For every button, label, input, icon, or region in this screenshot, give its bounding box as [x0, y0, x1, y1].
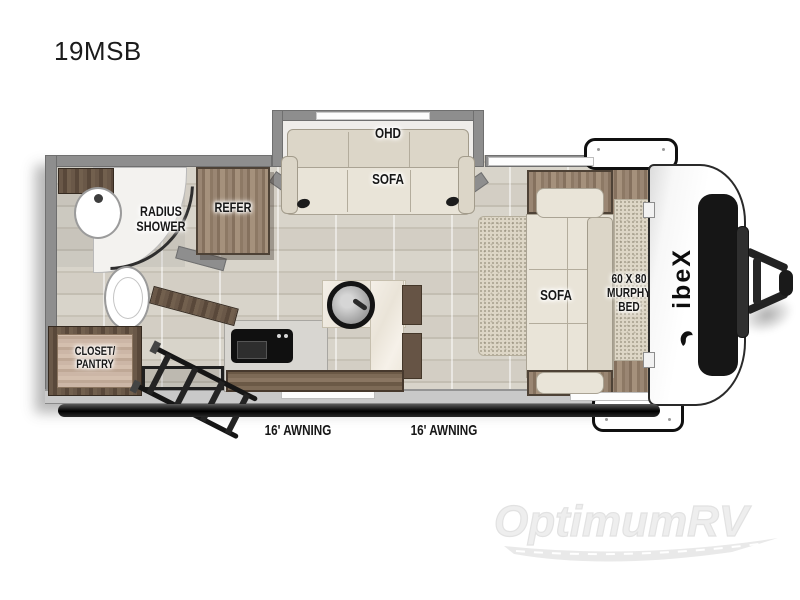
watermark-text: OptimumRV	[494, 497, 752, 546]
slideout-light-strip	[316, 112, 430, 120]
ibex-logo: ibeX	[664, 220, 700, 336]
kitchen-cabinet-front	[226, 370, 404, 392]
wall-top-left	[45, 155, 272, 167]
side-table-lower	[402, 333, 422, 379]
slide-sofa-armrest-right	[458, 156, 475, 214]
optimumrv-watermark: OptimumRV	[486, 488, 798, 580]
ohd-label: OHD	[358, 126, 417, 142]
radius-shower-line1: RADIUS	[127, 204, 194, 219]
ibex-logo-text: ibeX	[668, 248, 697, 309]
closet-line1: CLOSET/	[65, 345, 124, 358]
floorplan-canvas: 19MSB OptimumRV OHD SOFA RADIUS	[0, 0, 800, 600]
murphy-line3: BED	[606, 300, 651, 314]
slide-sofa-armrest-left	[281, 156, 298, 214]
closet-pantry-label: CLOSET/ PANTRY	[65, 345, 124, 370]
cooktop-knob	[284, 334, 288, 338]
toilet-seat	[113, 277, 143, 319]
sofa-armrest-top	[536, 188, 604, 218]
marker-light-top	[643, 202, 655, 218]
model-number-label: 19MSB	[54, 36, 142, 67]
kitchen-sink	[327, 281, 375, 329]
guard-screw-dot	[668, 418, 671, 421]
cushion-seam	[347, 170, 348, 212]
slideout-wall-right	[473, 110, 484, 167]
hitch-mount-bar	[736, 226, 749, 338]
cooktop	[231, 329, 293, 363]
island-counter-column	[370, 280, 404, 384]
hitch-jack-post	[753, 258, 761, 304]
radius-shower-label: RADIUS SHOWER	[127, 204, 194, 234]
murphy-line2: MURPHY	[606, 286, 651, 300]
murphy-line1: 60 X 80	[606, 272, 651, 286]
side-table-upper	[402, 285, 422, 325]
marker-light-bottom	[643, 352, 655, 368]
slide-sofa-label: SOFA	[358, 172, 417, 188]
hitch-arm-upper	[745, 247, 788, 272]
main-sofa-label: SOFA	[526, 288, 585, 304]
window-strip-top	[488, 157, 594, 166]
closet-line2: PANTRY	[65, 358, 124, 371]
step-rung	[146, 353, 171, 395]
sink-faucet-dot	[94, 194, 103, 203]
murphy-bed-label: 60 X 80 MURPHY BED	[606, 272, 651, 313]
awning-right-label: 16' AWNING	[407, 423, 482, 439]
radius-shower-line2: SHOWER	[127, 219, 194, 234]
awning-left-label: 16' AWNING	[261, 423, 336, 439]
guard-screw-dot	[605, 418, 608, 421]
cooktop-knob	[277, 334, 281, 338]
guard-screw-dot	[662, 148, 665, 151]
awning-bar	[58, 404, 660, 417]
cushion-seam	[348, 132, 349, 172]
toilet	[104, 266, 150, 330]
hitch-coupler	[779, 270, 793, 296]
cooktop-griddle	[237, 341, 267, 359]
front-cap-window	[698, 194, 738, 376]
sofa-armrest-bottom	[536, 372, 604, 394]
step-rung	[173, 367, 198, 409]
refer-label: REFER	[206, 200, 261, 215]
guard-screw-dot	[597, 148, 600, 151]
